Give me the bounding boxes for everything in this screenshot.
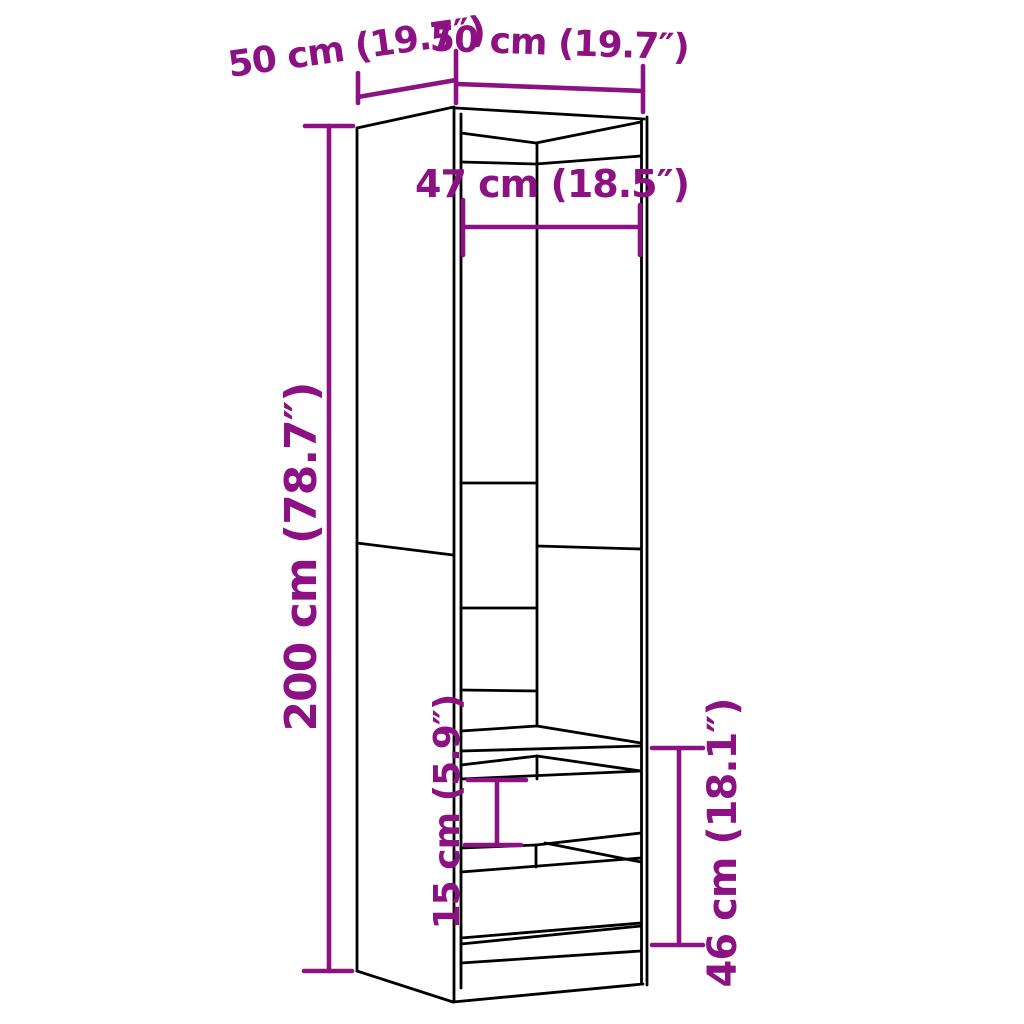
side-mid-line [357, 543, 453, 555]
dim-drawer-height [465, 780, 526, 845]
interior-mid-line [537, 546, 641, 549]
dimension-diagram: 50 cm (19.7″) 50 cm (19.7″) 47 cm (18.5″… [0, 0, 1024, 1024]
label-width: 50 cm (19.7″) [429, 19, 689, 69]
side-top-edge [357, 107, 454, 128]
label-interior-width: 47 cm (18.5″) [415, 162, 689, 206]
label-bottom-section: 46 cm (18.1″) [700, 698, 746, 987]
upper-drawer-box-side [537, 756, 641, 771]
dim-depth-line [358, 80, 456, 97]
dim-bottom-section [652, 748, 703, 945]
lower-drawer [461, 843, 641, 963]
label-height: 200 cm (78.7″) [276, 383, 327, 732]
shelf-top-left [461, 726, 537, 731]
dim-interior-width [463, 200, 640, 255]
bottom-side-edge [357, 971, 453, 1002]
bottom-front-edge [453, 984, 643, 1002]
upper-drawer [461, 756, 641, 848]
shelf-front-edge [461, 746, 641, 751]
top-front-edge [456, 108, 644, 119]
cabinet-interior [357, 122, 641, 751]
shelf-top-right [537, 726, 641, 743]
top-underside-right [536, 122, 641, 143]
dimension-labels: 50 cm (19.7″) 50 cm (19.7″) 47 cm (18.5″… [225, 9, 746, 987]
wardrobe-line-art: 50 cm (19.7″) 50 cm (19.7″) 47 cm (18.5″… [0, 0, 1024, 1024]
upper-drawer-box-back [461, 756, 537, 765]
dim-width [457, 66, 643, 112]
lower-drawer-front-top [461, 858, 641, 872]
label-drawer-height: 15 cm (5.9″) [427, 695, 468, 930]
dim-width-line [457, 84, 643, 91]
shelf-back-line [461, 690, 537, 691]
top-underside-left [461, 133, 536, 143]
bottom-panel-edge [461, 951, 641, 963]
